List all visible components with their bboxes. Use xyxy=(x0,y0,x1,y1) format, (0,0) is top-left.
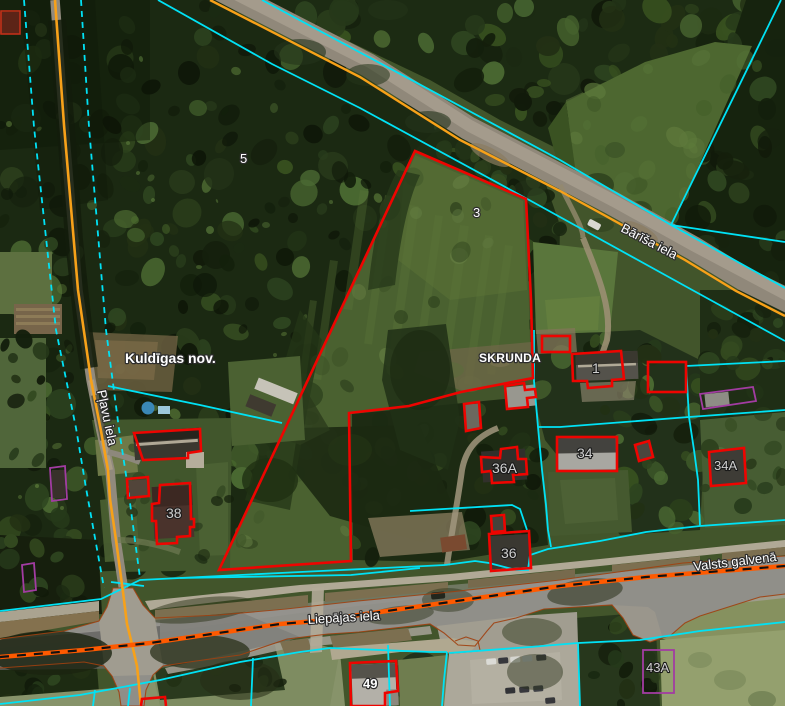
svg-text:34A: 34A xyxy=(714,458,737,473)
svg-text:3: 3 xyxy=(473,205,480,220)
svg-text:5: 5 xyxy=(240,151,247,166)
svg-text:36: 36 xyxy=(501,545,517,561)
svg-text:49: 49 xyxy=(363,676,377,691)
svg-text:34: 34 xyxy=(577,445,593,461)
svg-text:43A: 43A xyxy=(646,660,669,675)
svg-text:1: 1 xyxy=(592,360,600,376)
svg-text:38: 38 xyxy=(166,505,182,521)
svg-text:SKRUNDA: SKRUNDA xyxy=(479,351,541,365)
svg-text:Kuldīgas nov.: Kuldīgas nov. xyxy=(125,350,216,366)
svg-text:36A: 36A xyxy=(492,460,518,476)
